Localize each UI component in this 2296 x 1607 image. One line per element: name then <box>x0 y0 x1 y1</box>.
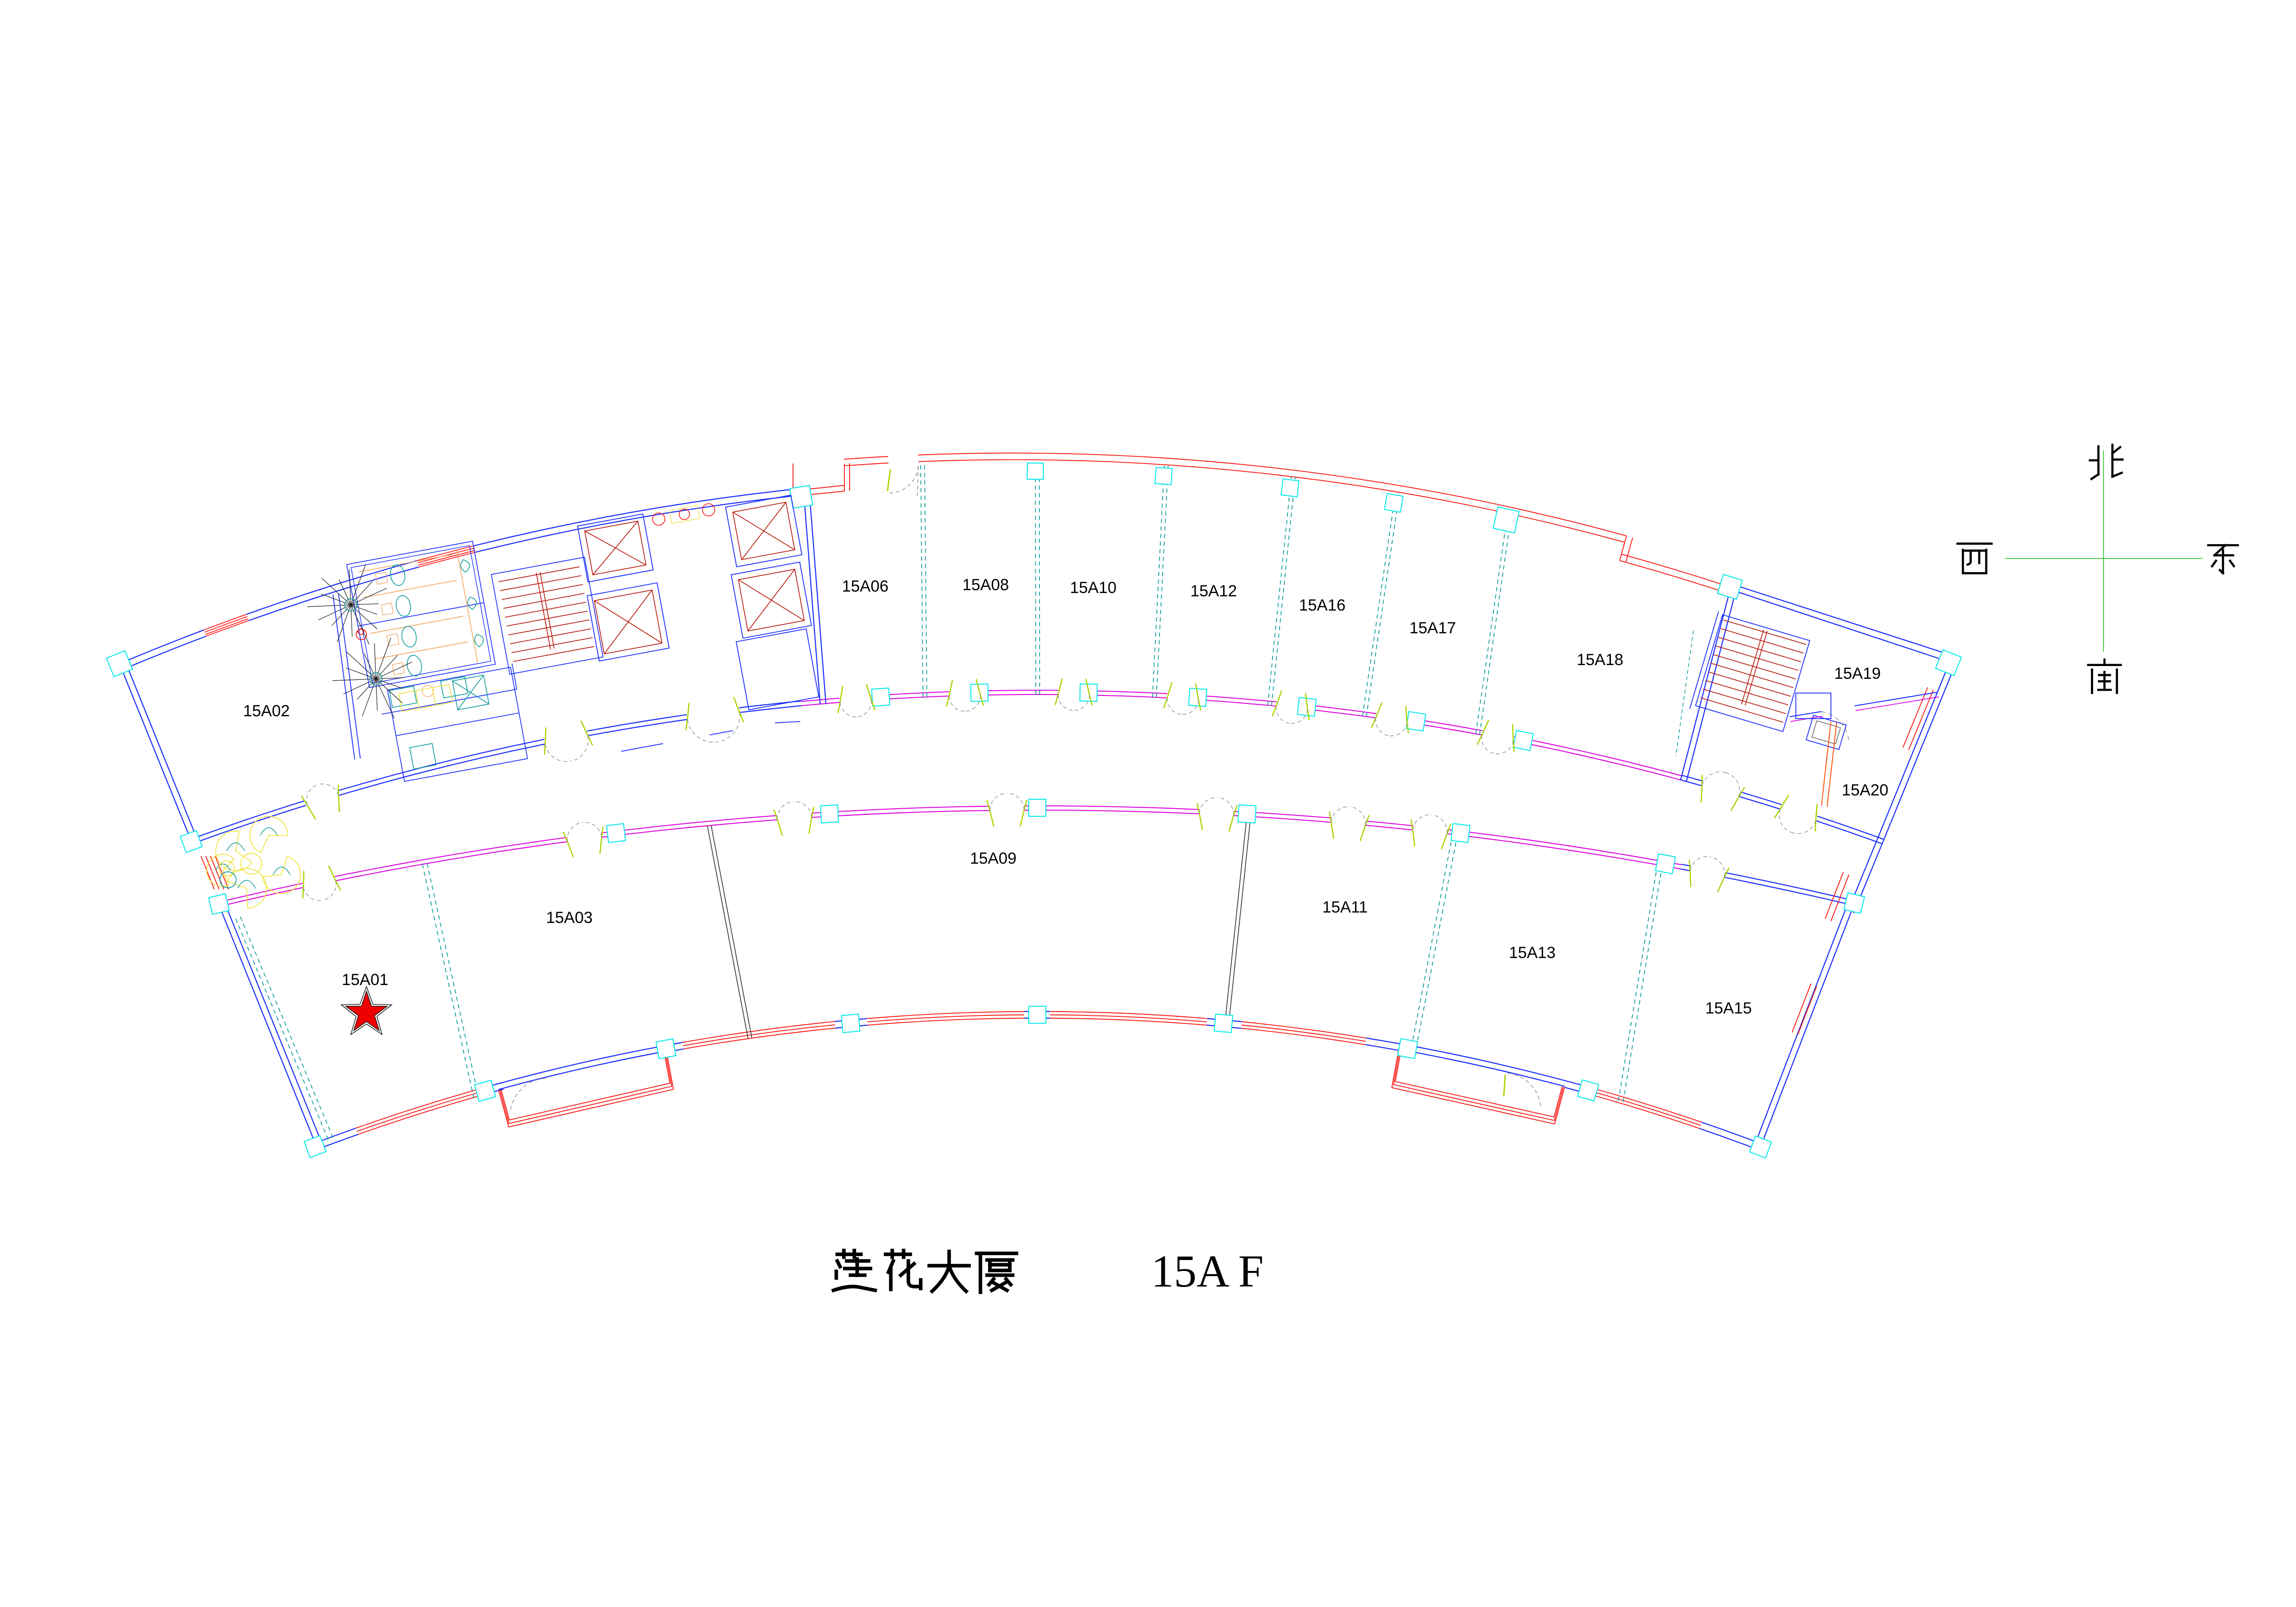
svg-text:15A13: 15A13 <box>1509 944 1555 962</box>
svg-text:15A11: 15A11 <box>1322 898 1368 916</box>
svg-text:15A17: 15A17 <box>1409 619 1456 637</box>
svg-text:15A20: 15A20 <box>1842 781 1888 799</box>
svg-text:15A01: 15A01 <box>342 971 388 989</box>
svg-text:15A15: 15A15 <box>1705 999 1752 1017</box>
svg-text:15A06: 15A06 <box>842 577 888 595</box>
svg-text:15A18: 15A18 <box>1577 651 1623 669</box>
svg-text:15A08: 15A08 <box>962 576 1009 594</box>
svg-text:15A10: 15A10 <box>1070 579 1116 597</box>
svg-text:15A03: 15A03 <box>546 909 593 927</box>
svg-text:15A19: 15A19 <box>1834 665 1881 683</box>
svg-text:15A16: 15A16 <box>1299 596 1345 614</box>
svg-text:F: F <box>1238 1246 1263 1297</box>
svg-text:15A: 15A <box>1151 1246 1229 1297</box>
svg-text:15A02: 15A02 <box>243 702 290 720</box>
svg-text:15A09: 15A09 <box>970 849 1016 867</box>
svg-text:15A12: 15A12 <box>1190 582 1237 600</box>
